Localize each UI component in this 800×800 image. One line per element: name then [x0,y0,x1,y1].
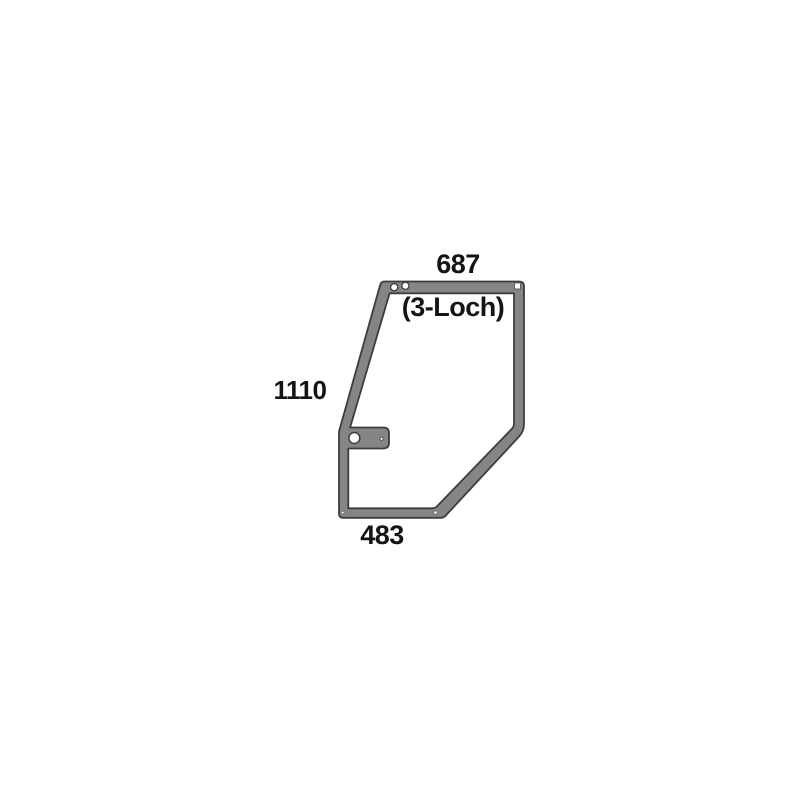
dimension-left-height: 1110 [260,377,340,403]
top-edge-hole-1 [391,284,398,291]
product-diagram-canvas: 687 (3-Loch) 1110 483 [0,0,800,800]
top-edge-hole-2 [402,282,409,289]
bottom-right-pin-mark [434,511,437,514]
dimension-bottom-width: 483 [342,522,422,549]
tab-hole [349,433,360,444]
top-right-square-hole [515,283,521,289]
dimension-top-width: 687 [418,251,498,278]
hole-count-note: (3-Loch) [392,294,514,321]
door-glass-diagram [0,0,800,800]
bottom-left-pin-mark [341,511,344,514]
tab-pin-mark [380,437,383,440]
